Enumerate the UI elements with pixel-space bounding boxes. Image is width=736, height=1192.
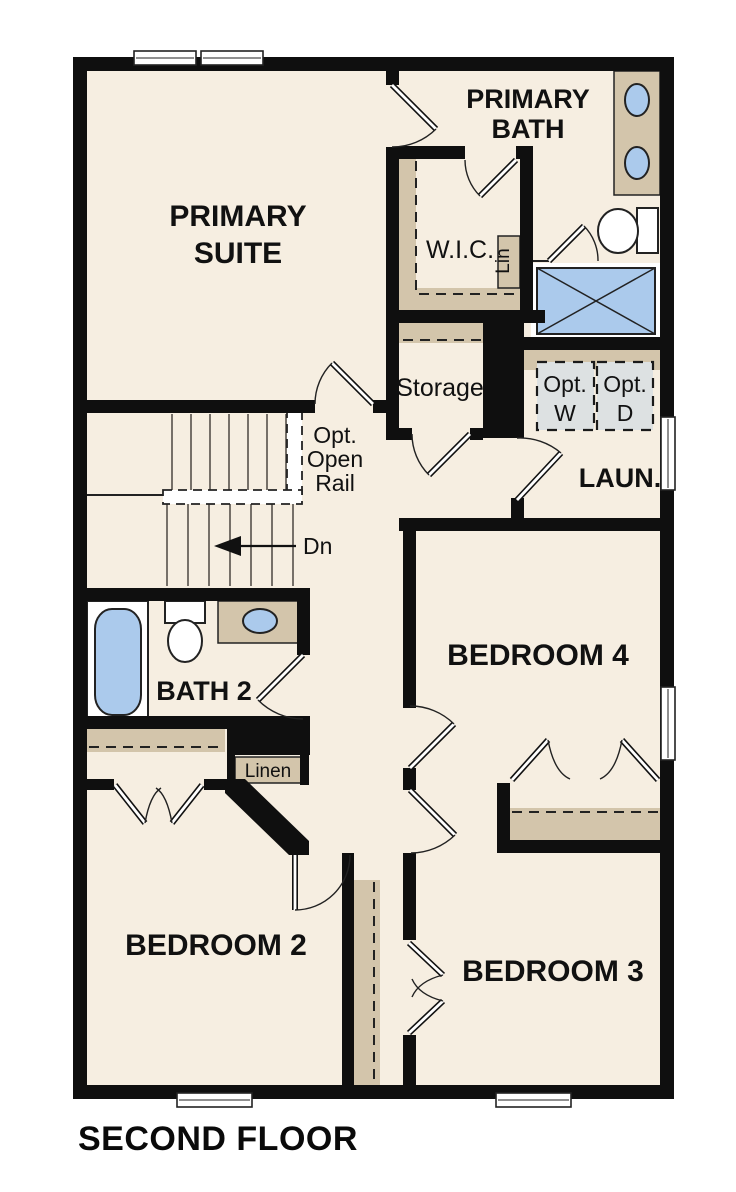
wall-outer-bottom: [73, 1085, 674, 1099]
lin-closet-label: Lin: [493, 248, 514, 273]
down-label: Dn: [303, 533, 332, 559]
window-primary-suite-2: [201, 51, 263, 65]
wall-outer-right: [660, 57, 674, 1099]
bedroom3-closet-shelf: [354, 880, 380, 1085]
open-rail-label-line2: Open: [307, 446, 363, 472]
primary-bath-label-line1: PRIMARY: [466, 84, 590, 114]
primary-bath-label-line2: BATH: [492, 114, 565, 144]
storage-label: Storage: [396, 374, 484, 402]
bedroom3-label: BEDROOM 3: [462, 955, 644, 988]
open-rail-label-line3: Rail: [315, 470, 355, 496]
primary-bath-sink-1: [625, 84, 649, 116]
window-bedroom3: [496, 1093, 571, 1107]
primary-toilet-tank: [637, 208, 658, 253]
primary-suite-label-line1: PRIMARY: [169, 200, 306, 233]
bath2-sink: [243, 609, 277, 633]
window-bedroom4: [661, 687, 675, 760]
opt-washer-label-line1: Opt.: [543, 371, 586, 397]
linen-label: Linen: [245, 761, 292, 782]
wic-shelf-left: [399, 159, 416, 292]
opt-dryer-label-line1: Opt.: [603, 371, 646, 397]
window-bedroom2: [177, 1093, 252, 1107]
opt-washer-label-line2: W: [554, 400, 576, 426]
laundry-label: LAUN.: [579, 463, 662, 493]
window-laundry: [661, 417, 675, 490]
bedroom4-label: BEDROOM 4: [447, 639, 629, 672]
open-rail-label-line1: Opt.: [313, 422, 356, 448]
bath2-tub: [95, 609, 141, 715]
wic-shelf-bottom: [399, 288, 533, 310]
page-title: SECOND FLOOR: [78, 1120, 358, 1158]
floor-plan-page: PRIMARY SUITE PRIMARY BATH W.I.C. Lin St…: [0, 0, 736, 1192]
bath2-toilet-bowl: [168, 620, 202, 662]
primary-toilet-bowl: [598, 209, 638, 253]
bath2-label: BATH 2: [156, 676, 252, 706]
bedroom2-closet-shelf: [87, 729, 225, 752]
bedroom2-label: BEDROOM 2: [125, 929, 307, 962]
wic-label: W.I.C.: [426, 236, 494, 264]
wall-outer-left: [73, 57, 87, 1099]
stair-rail-horizontal: [163, 490, 302, 504]
primary-suite-label-line2: SUITE: [194, 237, 282, 270]
primary-bath-sink-2: [625, 147, 649, 179]
floor-plan-drawing: PRIMARY SUITE PRIMARY BATH W.I.C. Lin St…: [0, 0, 736, 1192]
stair-rail-vertical: [287, 411, 302, 497]
window-primary-suite-1: [134, 51, 196, 65]
opt-dryer-label-line2: D: [617, 400, 634, 426]
